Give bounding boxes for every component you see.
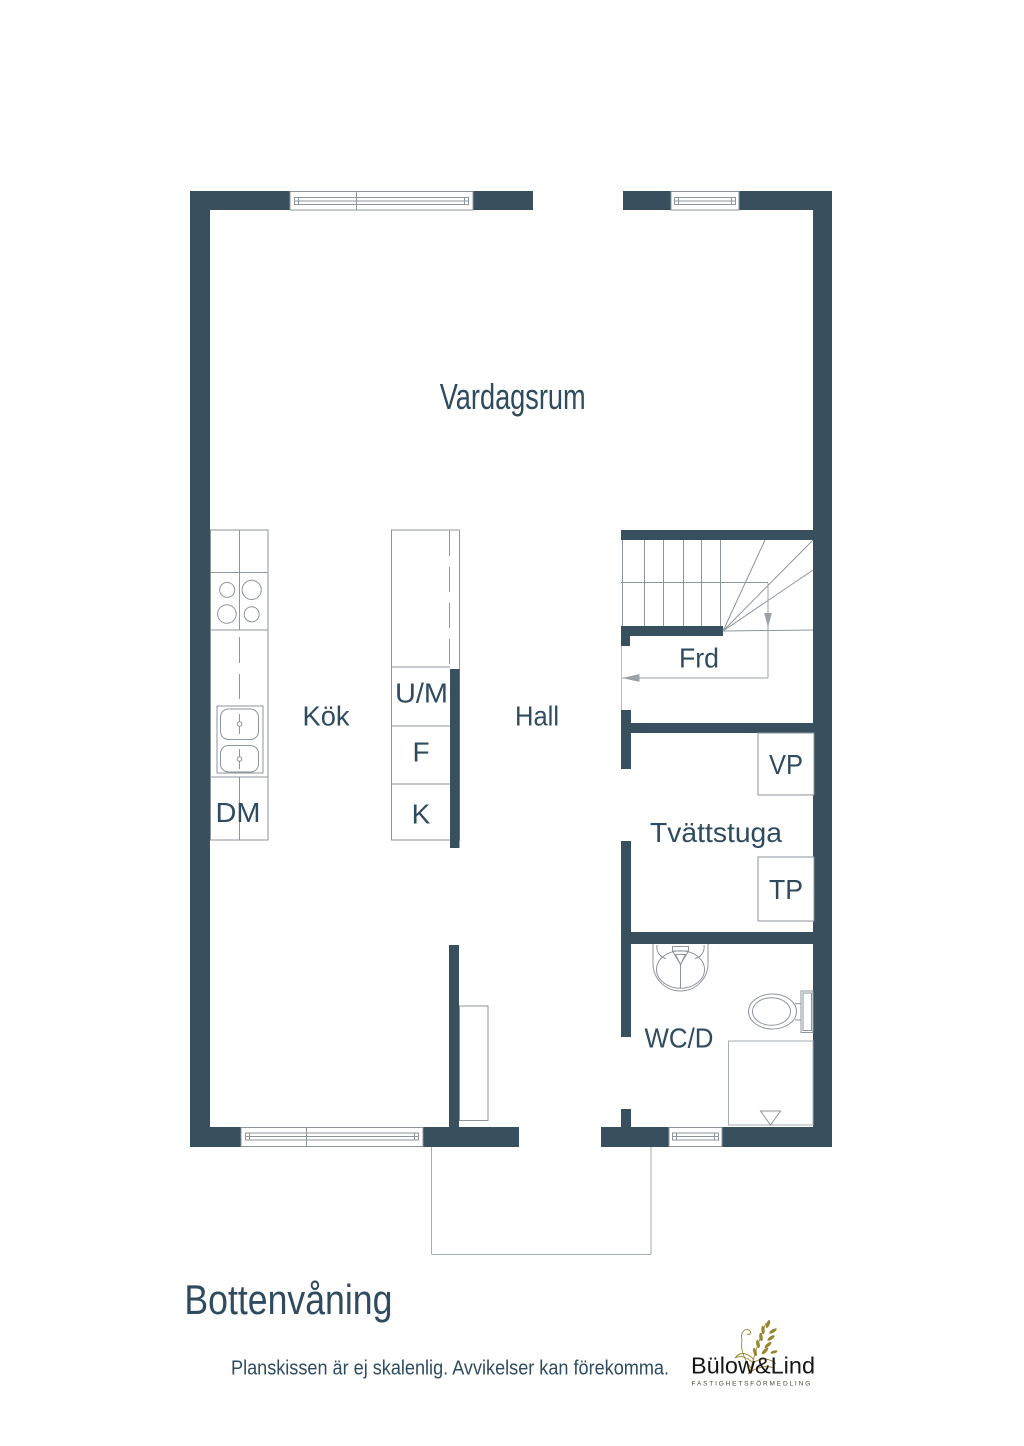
svg-text:Bülow&Lind: Bülow&Lind: [691, 1353, 815, 1379]
svg-text:FASTIGHETSFÖRMEDLING: FASTIGHETSFÖRMEDLING: [692, 1380, 812, 1388]
svg-text:Planskissen är ej skalenlig. A: Planskissen är ej skalenlig. Avvikelser …: [231, 1358, 669, 1380]
svg-text:Kök: Kök: [303, 701, 351, 732]
svg-text:Hall: Hall: [515, 701, 559, 732]
svg-text:DM: DM: [216, 797, 261, 828]
svg-text:Bottenvåning: Bottenvåning: [184, 1276, 392, 1323]
svg-text:Vardagsrum: Vardagsrum: [440, 376, 586, 417]
svg-text:WC/D: WC/D: [645, 1023, 714, 1054]
svg-text:Frd: Frd: [679, 643, 719, 674]
svg-text:F: F: [412, 737, 429, 768]
svg-text:VP: VP: [769, 749, 803, 780]
svg-text:U/M: U/M: [395, 678, 448, 709]
svg-text:K: K: [412, 799, 431, 830]
svg-text:TP: TP: [769, 874, 803, 905]
svg-text:Tvättstuga: Tvättstuga: [650, 817, 782, 848]
